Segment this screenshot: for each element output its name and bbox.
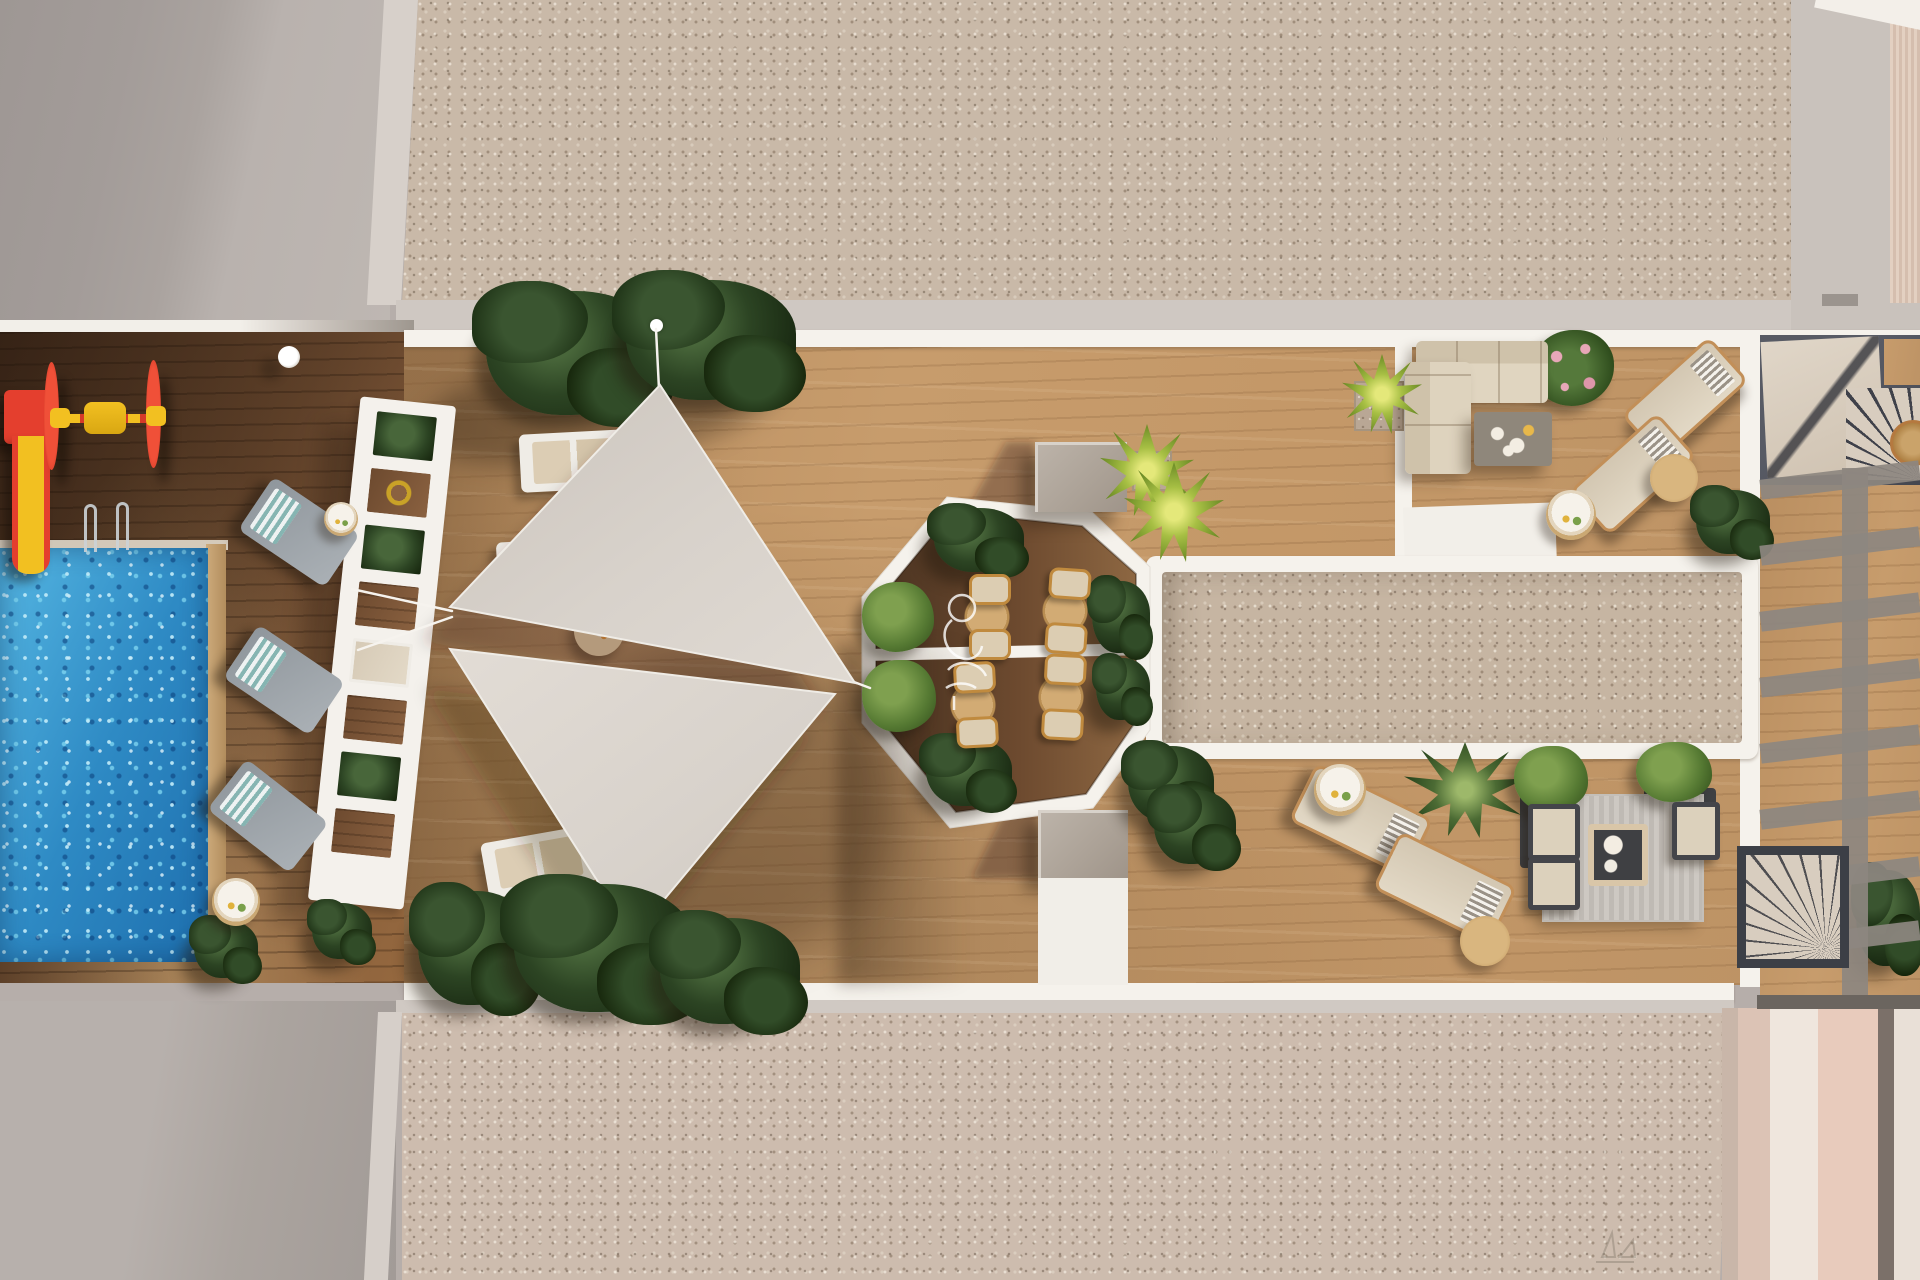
dining-set-2 (1037, 568, 1093, 653)
pergola-cell-plant-3 (337, 751, 401, 801)
pergola-shadow-beam-5 (1759, 724, 1920, 763)
side-table-sundeck-1 (1314, 764, 1366, 816)
coffee-table-sofa (1474, 412, 1552, 466)
dining-set-1 (962, 576, 1012, 658)
roof-bulkhead-lower-base (1038, 878, 1128, 985)
bush-poolside-1 (194, 920, 258, 978)
lounger-deck-1 (519, 429, 630, 493)
side-table-stairs (1890, 420, 1920, 466)
side-table-sundeck-2 (1460, 916, 1510, 966)
octagon-ivy-2 (862, 660, 936, 732)
lower-roof-gravel (402, 1013, 1732, 1280)
bush-poolside-2 (312, 903, 372, 959)
pergola-shadow-beam-3 (1759, 592, 1920, 631)
armchair-lounge-2 (1528, 858, 1580, 910)
bush-lounge-right (1636, 742, 1712, 802)
octagon-bush-top (934, 508, 1024, 572)
pergola-shadow-beam-1 (1759, 460, 1920, 499)
pergola-cell-plant-1 (373, 411, 437, 461)
pergola-cell-tray-table (367, 468, 431, 518)
stairwell-lower (1737, 846, 1849, 968)
bush-sofa-zone (1696, 490, 1770, 554)
side-table-sofazone-1 (1650, 454, 1698, 502)
roof-bulkhead-upper (1035, 442, 1127, 512)
plant-bottom-3 (660, 918, 800, 1024)
armchair-lounge-1 (1528, 804, 1580, 860)
dining-set-4 (1034, 655, 1088, 740)
rooftop-terrace-render: Rooftop amenity terrace — aerial top-dow… (0, 0, 1920, 1280)
lounger-pool-3 (207, 759, 328, 873)
octagon-bush-right (1092, 581, 1150, 653)
pergola-cell-deck-2 (343, 695, 407, 745)
sail-pole-top (650, 319, 663, 332)
side-table-sofazone-2 (1546, 490, 1596, 540)
bush-lounge-left (1514, 746, 1588, 812)
side-table-pool-2 (212, 878, 260, 926)
stair-section-parapet (1757, 995, 1920, 1009)
side-table-pool-1 (324, 502, 358, 536)
pergola-shadow-beam-6 (1759, 790, 1920, 829)
side-table-deck (544, 498, 580, 534)
plant-court-2 (1154, 790, 1236, 864)
sofa-chaise (1405, 362, 1471, 474)
dining-set-3 (946, 663, 1000, 748)
pergola-cell-plant-2 (361, 525, 425, 575)
octagon-bush-low-right (1096, 658, 1150, 720)
plant-top-right (626, 280, 796, 400)
bench-lounge (1672, 802, 1720, 860)
pergola-shadow-beam-4 (1759, 658, 1920, 697)
roof-vent-mark (1822, 294, 1858, 306)
pergola-cell-deck-1 (355, 581, 419, 631)
octagon-ivy-1 (862, 582, 934, 652)
serving-platform (574, 606, 624, 656)
lower-right-roof-levels (1722, 1008, 1920, 1280)
pool-lamp (278, 346, 300, 368)
roof-bulkhead-lower (1038, 810, 1128, 878)
coffee-table-lounge (1588, 824, 1648, 886)
pergola-cell-deck-3 (331, 808, 395, 858)
lounger-deck-2 (496, 537, 598, 590)
pergola-cell-lounger (349, 638, 413, 688)
pergola-shadow-beam-2 (1759, 526, 1920, 565)
lower-roof-concrete (0, 1001, 396, 1280)
